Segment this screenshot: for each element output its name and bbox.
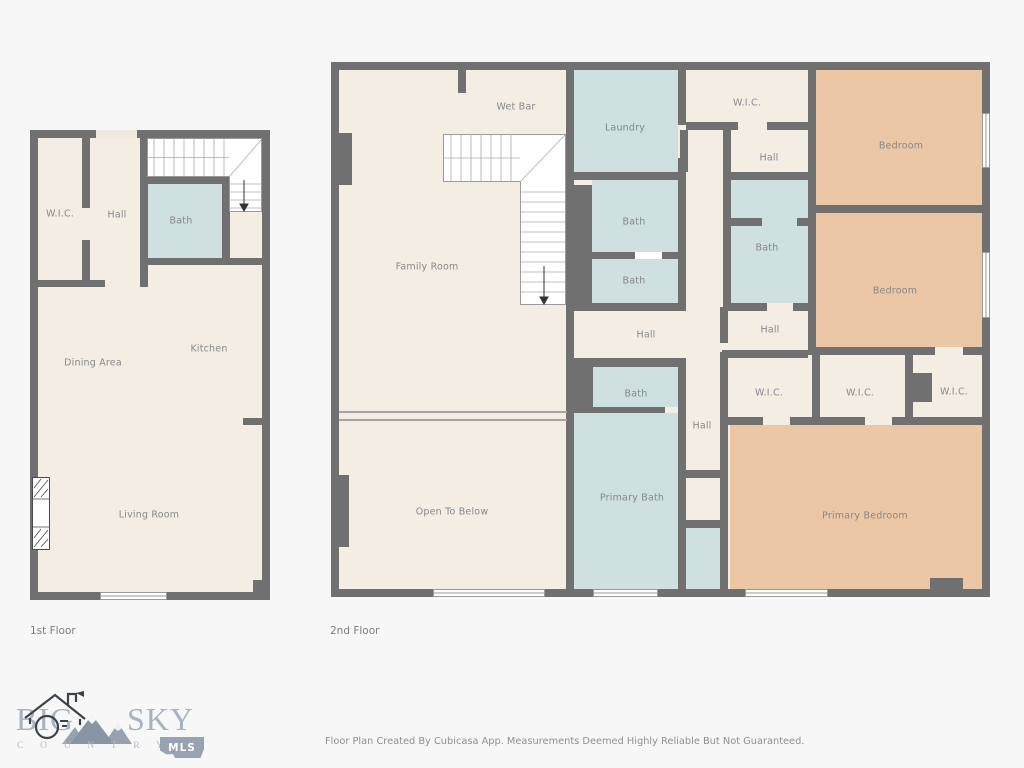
room-label-bath-lower: Bath [625,389,648,400]
window-symbol [982,252,990,318]
room-label-laundry: Laundry [605,123,645,134]
room-label-wic-2: W.I.C. [846,388,874,399]
room-label-bath-b: Bath [623,276,646,287]
room-label-hall-lower: Hall [692,421,711,432]
staircase-floor2 [443,134,566,305]
railing [339,419,567,421]
room-label-hall-center: Hall [636,330,655,341]
mls-badge-label: MLS [168,742,196,754]
room-label-hall-right: Hall [760,325,779,336]
room-label-open-to-below: Open To Below [416,507,489,518]
room-label-family-room: Family Room [396,262,459,273]
disclaimer-text: Floor Plan Created By Cubicasa App. Meas… [325,736,804,747]
room-primary-bath-ext [686,527,720,589]
window-symbol [982,113,990,168]
room-bath-lower [593,367,678,407]
room-laundry [574,70,678,172]
room-label-bedroom-top: Bedroom [879,141,923,152]
room-label-wet-bar: Wet Bar [496,102,535,113]
room-bedroom-mid [816,213,982,347]
window-symbol [593,589,658,597]
room-label-primary-bedroom: Primary Bedroom [822,511,908,522]
room-label-hall-top: Hall [759,153,778,164]
logo-word-sky: SKY [127,703,194,735]
house-icon [22,688,88,740]
room-primary-bedroom [730,425,982,589]
room-label-wic-3: W.I.C. [940,387,968,398]
room-bedroom-top [816,70,982,205]
room-bath-right [731,180,808,303]
logo-word-country: C O U N T R Y [17,741,170,751]
room-label-bedroom-mid: Bedroom [873,286,917,297]
room-label-bath-right: Bath [756,243,779,254]
room-label-wic-1: W.I.C. [755,388,783,399]
floor2-caption: 2nd Floor [330,625,379,637]
room-label-primary-bath: Primary Bath [600,493,664,504]
window-symbol [745,589,828,597]
second-floor-plan: Wet Bar Laundry W.I.C. Hall Bedroom Bedr… [0,0,1024,768]
window-symbol [433,589,545,597]
room-label-wic-top: W.I.C. [733,98,761,109]
railing [339,411,567,413]
room-label-bath-a: Bath [623,217,646,228]
